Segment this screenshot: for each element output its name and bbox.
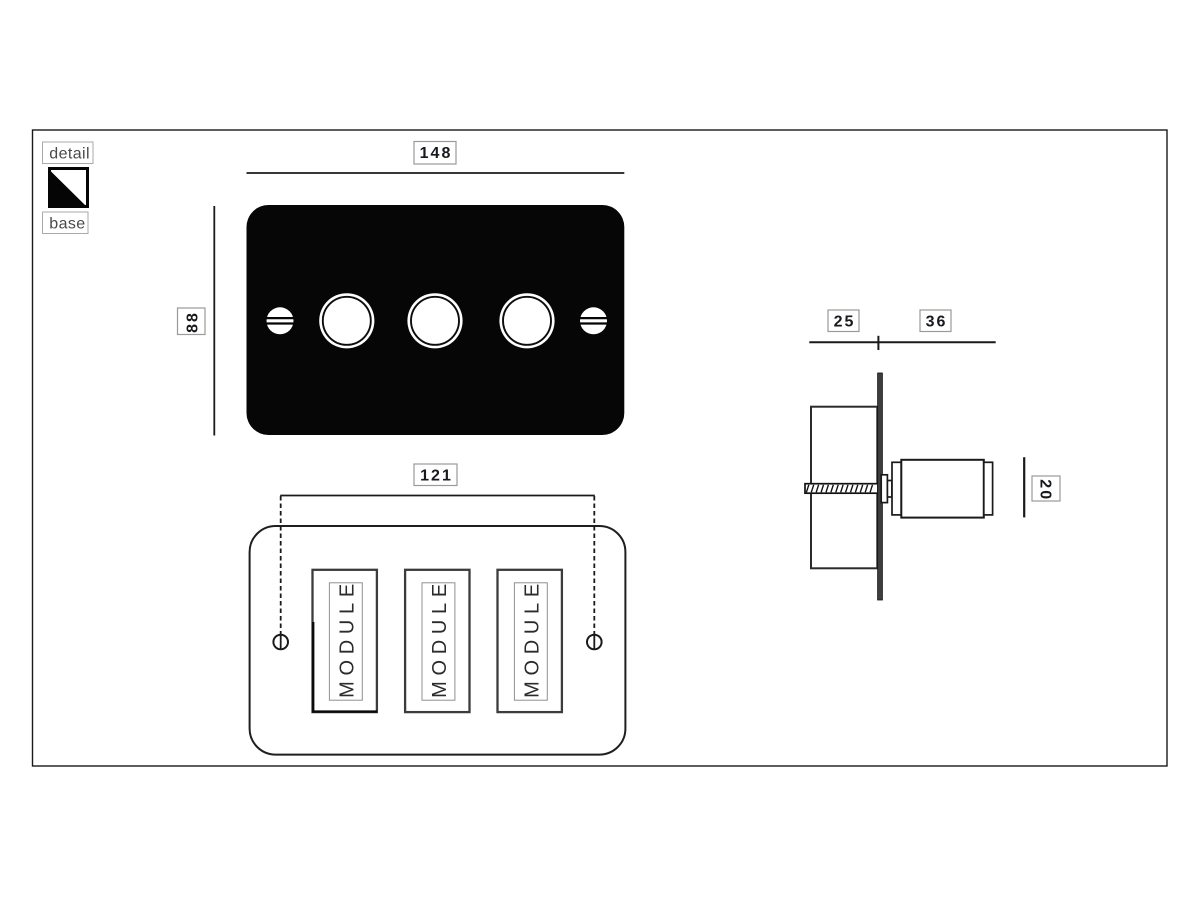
svg-text:121: 121 bbox=[420, 467, 453, 484]
svg-text:base: base bbox=[49, 215, 85, 232]
svg-text:MODULE: MODULE bbox=[336, 578, 358, 698]
svg-text:36: 36 bbox=[926, 314, 948, 331]
svg-text:20: 20 bbox=[1037, 479, 1054, 501]
svg-text:148: 148 bbox=[420, 145, 453, 162]
svg-text:detail: detail bbox=[49, 145, 90, 162]
svg-text:25: 25 bbox=[834, 314, 856, 331]
svg-text:88: 88 bbox=[184, 311, 201, 333]
svg-text:MODULE: MODULE bbox=[522, 578, 544, 698]
svg-text:MODULE: MODULE bbox=[429, 578, 451, 698]
